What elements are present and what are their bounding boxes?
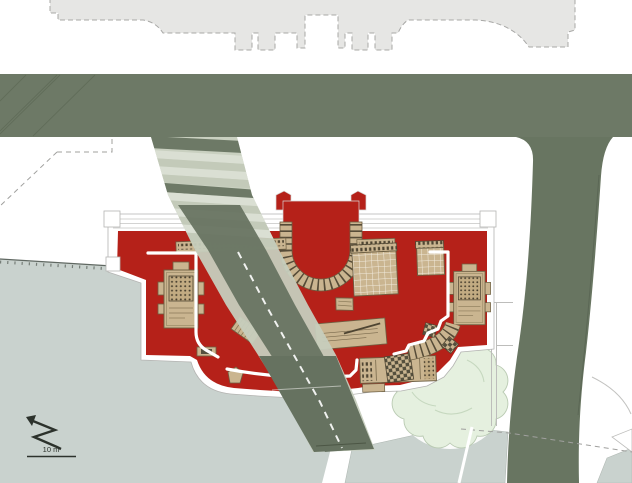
coffer-grid-small bbox=[415, 241, 444, 276]
wedge-fragment bbox=[334, 296, 355, 313]
site-plan-drawing: 10 m bbox=[0, 0, 632, 483]
site-plan-canvas: 10 m bbox=[0, 0, 632, 483]
coffer-grid-main bbox=[351, 243, 400, 296]
monument-east bbox=[448, 264, 490, 325]
main-road bbox=[0, 74, 632, 137]
scale-label: 10 m bbox=[43, 445, 60, 454]
apse-body bbox=[283, 201, 359, 232]
